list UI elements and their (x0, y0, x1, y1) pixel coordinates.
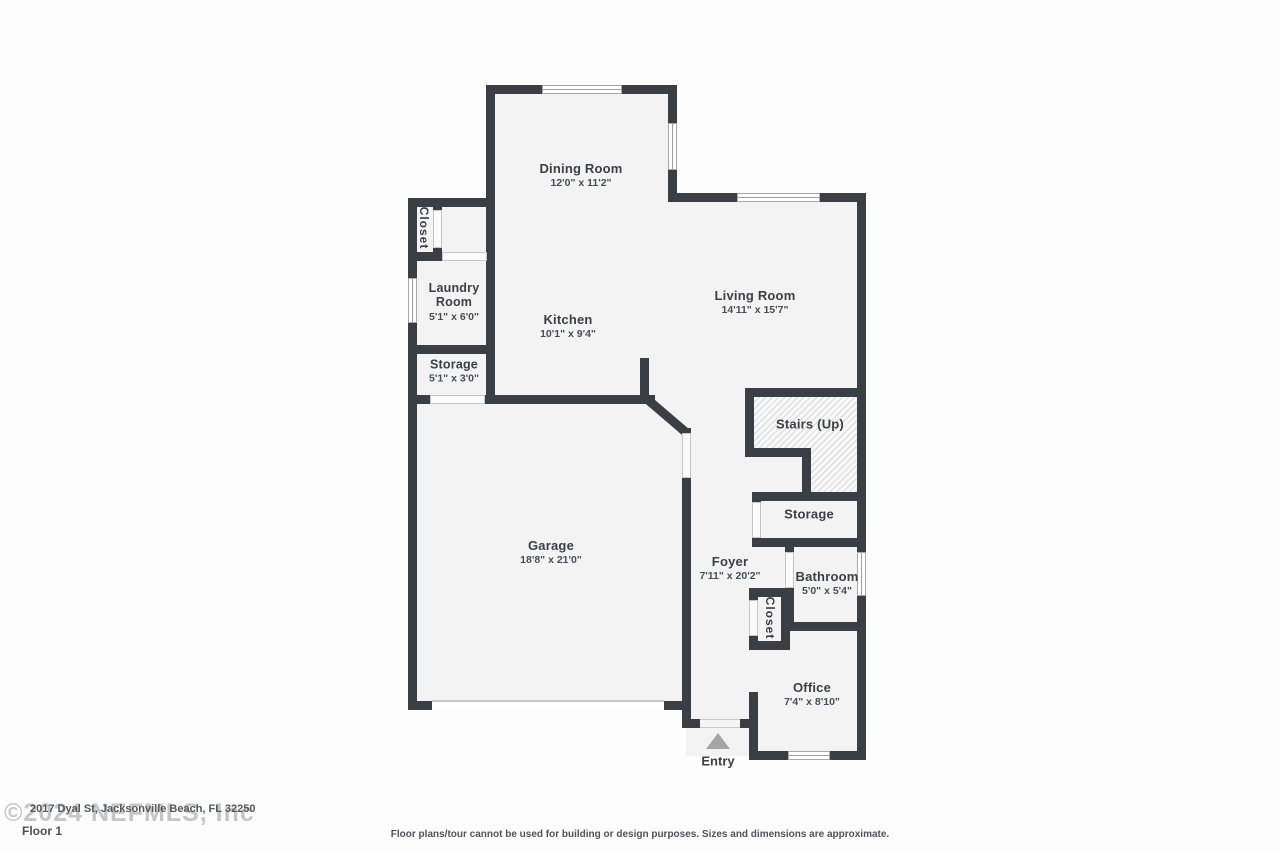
room-label-garage: Garage 18'8" x 21'0" (520, 538, 582, 566)
floor-plan: Dining Room 12'0" x 11'2" Living Room 14… (0, 0, 1280, 853)
room-label-dining: Dining Room 12'0" x 11'2" (539, 161, 622, 189)
wall-stairs-left (745, 388, 754, 457)
property-address: 2017 Dyal St, Jacksonville Beach, FL 322… (30, 803, 255, 815)
wall-closet-lower-bottom (749, 641, 790, 650)
wall-garage-bottom-left-stub (408, 701, 432, 710)
door-kitchen-foyer (682, 433, 691, 478)
wall-right-outer (857, 193, 866, 760)
entry-arrow-icon (706, 733, 730, 749)
wall-storage-lower-bottom (752, 538, 866, 547)
disclaimer-text: Floor plans/tour cannot be used for buil… (0, 829, 1280, 840)
room-label-kitchen: Kitchen 10'1" x 9'4" (540, 312, 596, 340)
room-label-stairs: Stairs (Up) (776, 417, 844, 432)
window-living-top (737, 193, 820, 202)
wall-foyer-bottom-right-stub (740, 719, 758, 728)
room-label-living: Living Room 14'11" x 15'7" (715, 288, 796, 316)
room-label-storage-lower: Storage (784, 507, 834, 522)
door-storage-upper (430, 395, 485, 404)
room-label-closet-lower: Closet (763, 597, 777, 640)
wall-garage-bottom-right-stub (664, 701, 691, 710)
room-label-office: Office 7'4" x 8'10" (784, 680, 840, 708)
garage-door-opening (432, 700, 664, 710)
room-label-foyer: Foyer 7'11" x 20'2" (699, 554, 760, 582)
wall-closet-upper-top (408, 198, 495, 207)
wall-dining-left-column (486, 85, 495, 404)
entry-label: Entry (701, 754, 734, 769)
floor-dining (495, 94, 668, 210)
door-closet-lower (749, 600, 758, 636)
door-laundry (442, 252, 487, 261)
door-closet-upper (433, 210, 442, 248)
wall-left-outer (408, 198, 417, 710)
wall-stairs-top (745, 388, 857, 397)
wall-storage-lower-top (752, 492, 857, 501)
door-storage-lower (752, 502, 761, 538)
window-dining-top (542, 85, 622, 94)
room-label-closet-upper: Closet (417, 207, 431, 250)
room-label-storage-upper: Storage 5'1" x 3'0" (429, 358, 479, 385)
room-label-laundry: Laundry Room 5'1" x 6'0" (414, 281, 494, 323)
floor-kitchen-living (495, 202, 857, 397)
window-office-bottom (788, 751, 830, 760)
wall-foyer-bottom-left-stub (682, 719, 700, 728)
door-bathroom (785, 552, 794, 588)
room-label-bathroom: Bathroom 5'0" x 5'4" (796, 569, 859, 597)
wall-laundry-bottom (408, 345, 495, 354)
door-entry-opening (700, 719, 740, 728)
wall-bathroom-bottom (785, 622, 866, 631)
window-dining-right (668, 123, 677, 170)
